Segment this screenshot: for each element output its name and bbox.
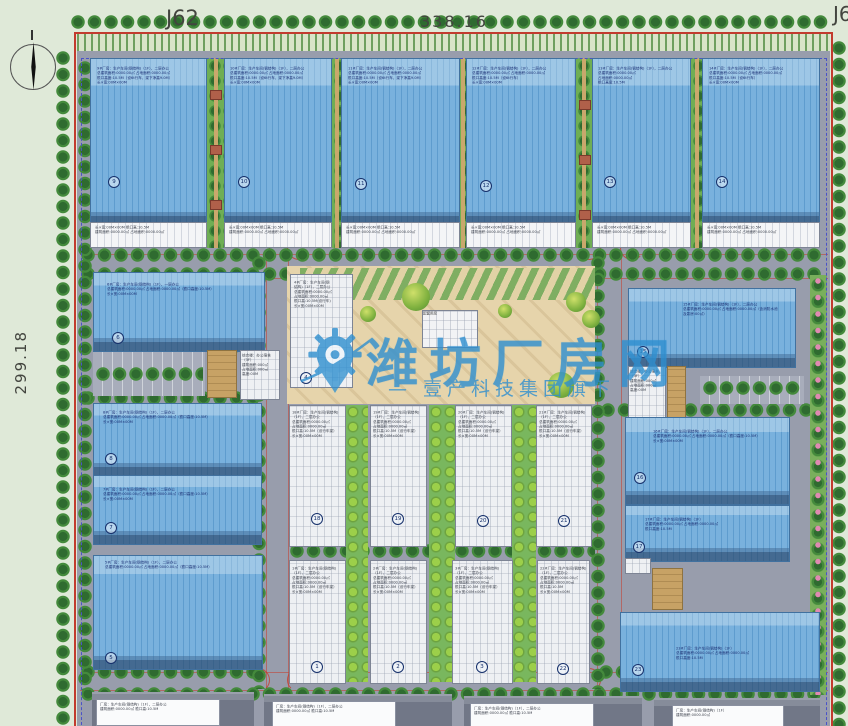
building-number-badge: 17 <box>633 541 645 553</box>
bottom-annotation-box: 厂房：生产车间(钢结构)（1F） 建筑面积:0000.00㎡ <box>672 705 784 726</box>
building-number-badge: 5 <box>105 652 117 664</box>
building-r3w4: 21#厂房：生产车间(钢结构) （1F），二层办公 总建筑面积:0000.00㎡… <box>536 405 592 545</box>
building-t4: 长×宽:00M×00M 檐口高:10.5M 建筑面积:0000.00㎡ 占地面积… <box>466 58 576 248</box>
bottom-annotation-box: 厂房：生产车间(钢结构)（1F），二层办公 建筑面积:0000.00㎡ 檐口高:… <box>470 703 594 726</box>
building-number-badge: 2 <box>392 661 404 673</box>
building-roof <box>207 350 237 398</box>
building-number-badge: 3 <box>476 661 488 673</box>
building-annotation: 15#厂房：生产车间(钢结构)（1F），二层办公 总建筑面积:0000.00㎡ … <box>683 302 793 362</box>
bottom-annotation-box: 厂房：生产车间(钢结构)（1F），二层办公 建筑面积:0000.00㎡ 檐口高:… <box>96 699 220 726</box>
building-annotation: 综合楼：办公宿舍 （3F） 建筑面积:000㎡ 占地面积:000㎡ 高度:00M <box>630 369 664 420</box>
building-annotation: 22#厂房：生产车间(钢结构) （1F），二层办公 总建筑面积:0000.00㎡… <box>540 566 587 678</box>
tree-row <box>55 50 72 726</box>
plaza-tree <box>402 283 430 311</box>
building-r2rt <box>667 366 686 424</box>
building-number-badge: 6 <box>112 332 124 344</box>
plaza-tree <box>360 306 376 322</box>
building-t2: 长×宽:00M×00M 檐口高:10.5M 建筑面积:0000.00㎡ 占地面积… <box>224 58 332 248</box>
label-top-left-point: J62 <box>166 6 199 30</box>
building-r3la: 8#厂房：生产车间(钢结构)（1F），二层办公 总建筑面积:0000.00㎡ 占… <box>93 403 262 475</box>
building-annotation: 6#厂房：生产车间(钢结构)（1F），一层办公 总建筑面积:0000.00㎡ 占… <box>107 282 259 346</box>
building-number-badge: 4 <box>300 372 312 384</box>
small-house <box>210 200 222 210</box>
building-t3: 长×宽:00M×00M 檐口高:10.5M 建筑面积:0000.00㎡ 占地面积… <box>341 58 460 248</box>
building-number-badge: 16 <box>634 472 646 484</box>
building-t5: 长×宽:00M×00M 檐口高:10.5M 建筑面积:0000.00㎡ 占地面积… <box>592 58 691 248</box>
building-roof <box>652 568 683 610</box>
building-r4w4: 22#厂房：生产车间(钢结构) （1F），二层办公 总建筑面积:0000.00㎡… <box>537 560 590 682</box>
building-r4rt <box>652 568 683 608</box>
building-annotation: 13#厂房：生产车间(钢结构)（1F），二层办公 总建筑面积:0000.00㎡ … <box>598 66 686 244</box>
building-t6: 长×宽:00M×00M 檐口高:10.5M 建筑面积:0000.00㎡ 占地面积… <box>702 58 820 248</box>
building-number-badge: 1 <box>311 661 323 673</box>
site-plan-canvas: 配套用房 长×宽:00M×00M 檐口高:10.5M 建筑面积:0000.00㎡… <box>0 0 848 726</box>
building-r3rbox <box>625 558 651 572</box>
building-number-badge: 23 <box>632 664 644 676</box>
building-number-badge: 13 <box>604 176 616 188</box>
small-house <box>579 210 591 220</box>
plaza-tree <box>548 372 574 398</box>
plaza-tree <box>566 292 586 312</box>
building-annotation: 10#厂房：生产车间(钢结构)（1F），二层办公 总建筑面积:0000.00㎡ … <box>230 66 326 244</box>
building-t1: 长×宽:00M×00M 檐口高:10.5M 建筑面积:0000.00㎡ 占地面积… <box>90 58 207 248</box>
building-number-badge: 8 <box>105 453 117 465</box>
small-house <box>579 155 591 165</box>
building-r2l: 6#厂房：生产车间(钢结构)（1F），一层办公 总建筑面积:0000.00㎡ 占… <box>93 272 265 350</box>
building-r2r: 15#厂房：生产车间(钢结构)（1F），二层办公 总建筑面积:0000.00㎡ … <box>628 288 796 366</box>
building-r3w3: 20#厂房：生产车间(钢结构) （1F），二层办公 总建筑面积:0000.00㎡… <box>455 405 512 545</box>
building-r2rw: 综合楼：办公宿舍 （3F） 建筑面积:000㎡ 占地面积:000㎡ 高度:00M <box>628 366 666 424</box>
label-left-dimension: 299.18 <box>12 330 30 395</box>
plaza-tree <box>498 304 512 318</box>
plaza-tree <box>582 310 600 328</box>
building-r3w1: 18#厂房：生产车间(钢结构) （1F），二层办公 总建筑面积:0000.00㎡… <box>289 405 346 545</box>
boundary-line-right <box>831 32 833 726</box>
building-number-badge: 18 <box>311 513 323 525</box>
plaza-building-label: 配套用房 <box>423 311 477 316</box>
boundary-line-left <box>74 32 76 726</box>
building-r4w1: 1#厂房：生产车间(钢结构) （1F），二层办公 总建筑面积:0000.00㎡ … <box>289 560 346 682</box>
building-annotation: 23#厂房：生产车间(钢结构)（1F） 总建筑面积:0000.00㎡ 占地面积:… <box>676 646 808 686</box>
building-r4r: 23#厂房：生产车间(钢结构)（1F） 总建筑面积:0000.00㎡ 占地面积:… <box>620 612 820 690</box>
building-annotation: 14#厂房：生产车间(钢结构)（1F），二层办公 总建筑面积:0000.00㎡ … <box>709 66 813 244</box>
building-r3w2: 19#厂房：生产车间(钢结构) （1F），二层办公 总建筑面积:0000.00㎡… <box>370 405 427 545</box>
building-r3lb: 7#厂房：生产车间(钢结构)（1F），二层办公 总建筑面积:0000.00㎡ 占… <box>93 475 262 543</box>
building-r2lt <box>207 350 237 396</box>
building-number-badge: 15 <box>637 346 649 358</box>
building-annotation: 17#厂房：生产车间(钢结构)（1F） 总建筑面积:0000.00㎡ 占地面积:… <box>645 517 780 556</box>
building-number-badge: 12 <box>480 180 492 192</box>
label-top-dimension: 338.16 <box>420 12 488 31</box>
building-annotation: 11#厂房：生产车间(钢结构)（1F），二层办公 总建筑面积:0000.00㎡ … <box>348 66 453 244</box>
building-number-badge: 22 <box>557 663 569 675</box>
building-r2lw: 综合楼：办公宿舍 （3F） 建筑面积:000㎡ 占地面积:000㎡ 高度:00M <box>240 350 280 398</box>
small-house <box>210 145 222 155</box>
building-r4l: 5#厂房：生产车间(钢结构)（1F），二层办公 总建筑面积:0000.00㎡ 占… <box>93 555 263 668</box>
building-annotation: 16#厂房：生产车间(钢结构)（1F），二层办公 总建筑面积:0000.00㎡ … <box>653 429 785 499</box>
building-r3ra: 16#厂房：生产车间(钢结构)（1F），二层办公 总建筑面积:0000.00㎡ … <box>625 417 790 503</box>
building-number-badge: 19 <box>392 513 404 525</box>
compass-tick <box>31 30 33 40</box>
building-annotation: 4#厂房：生产车间(钢 结构)（1F），二层办公 总建筑面积:0000.00㎡ … <box>294 280 350 382</box>
label-top-right-point: J6 <box>833 2 848 26</box>
building-annotation: 9#厂房：生产车间(钢结构)（1F），二层办公 总建筑面积:0000.00㎡ 占… <box>97 66 200 244</box>
building-r4w3: 3#厂房：生产车间(钢结构) （1F），二层办公 总建筑面积:0000.00㎡ … <box>452 560 513 682</box>
tree-row <box>831 40 848 726</box>
bottom-annotation-box: 厂房：生产车间(钢结构)（1F），二层办公 建筑面积:0000.00㎡ 檐口高:… <box>272 701 396 726</box>
building-annotation: 12#厂房：生产车间(钢结构)（1F），二层办公 总建筑面积:0000.00㎡ … <box>472 66 570 244</box>
plaza-center-building: 配套用房 <box>422 310 478 348</box>
building-annotation: 7#厂房：生产车间(钢结构)（1F），二层办公 总建筑面积:0000.00㎡ 占… <box>103 487 255 539</box>
building-number-badge: 20 <box>477 515 489 527</box>
building-r3rb: 17#厂房：生产车间(钢结构)（1F） 总建筑面积:0000.00㎡ 占地面积:… <box>625 505 790 560</box>
building-roof <box>625 558 651 574</box>
hedge-band <box>77 34 830 51</box>
building-annotation: 综合楼：办公宿舍 （3F） 建筑面积:000㎡ 占地面积:000㎡ 高度:00M <box>242 353 278 394</box>
small-house <box>579 100 591 110</box>
building-number-badge: 14 <box>716 176 728 188</box>
building-r2c: 4#厂房：生产车间(钢 结构)（1F），二层办公 总建筑面积:0000.00㎡ … <box>290 274 353 386</box>
building-number-badge: 21 <box>558 515 570 527</box>
small-house <box>210 90 222 100</box>
building-number-badge: 7 <box>105 522 117 534</box>
building-number-badge: 10 <box>238 176 250 188</box>
building-annotation: 5#厂房：生产车间(钢结构)（1F），二层办公 总建筑面积:0000.00㎡ 占… <box>105 560 257 664</box>
building-number-badge: 11 <box>355 178 367 190</box>
building-r4w2: 2#厂房：生产车间(钢结构) （1F），二层办公 总建筑面积:0000.00㎡ … <box>370 560 427 682</box>
boundary-line-top <box>74 32 833 34</box>
building-number-badge: 9 <box>108 176 120 188</box>
building-annotation: 8#厂房：生产车间(钢结构)（1F），二层办公 总建筑面积:0000.00㎡ 占… <box>103 410 255 471</box>
